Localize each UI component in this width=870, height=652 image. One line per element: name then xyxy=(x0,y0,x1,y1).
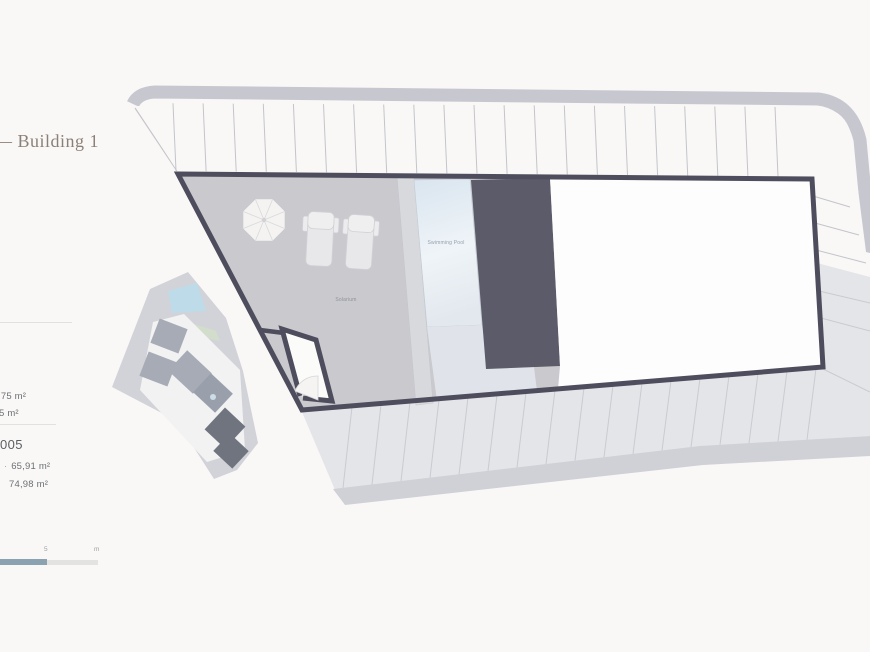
site-plan[interactable]: Swimming Pool Solarium xyxy=(0,0,870,652)
summary-area-line: ,75 m² xyxy=(0,391,26,402)
divider xyxy=(0,322,72,323)
solarium-label: Solarium xyxy=(335,297,356,303)
scale-tick-label: 5 xyxy=(44,546,48,553)
neighbor-building xyxy=(112,272,258,479)
summary-area-line: 5 m² xyxy=(0,408,19,419)
scale-bar-segment-light xyxy=(47,560,98,565)
scale-unit-label: m xyxy=(94,546,99,553)
unit-area-interior: ·65,91 m² xyxy=(4,461,50,472)
core-block xyxy=(471,178,560,369)
page-title: — Building 1 xyxy=(0,131,99,152)
unit-area-terrace: 74,98 m² xyxy=(9,479,48,490)
pool-deck xyxy=(427,325,493,401)
parasol-icon xyxy=(243,199,285,241)
unit-number: 005 xyxy=(0,437,23,452)
unit-area[interactable] xyxy=(550,178,823,389)
scale-bar: 5 m xyxy=(0,546,110,568)
swimming-pool-label: Swimming Pool xyxy=(427,240,464,246)
divider xyxy=(0,424,56,425)
neighbor-pool-dot xyxy=(210,394,216,400)
floorplan-page: Swimming Pool Solarium — Building 1 ,75 … xyxy=(0,0,870,652)
scale-bar-segment-dark xyxy=(0,559,47,565)
bullet-icon: · xyxy=(4,461,7,471)
